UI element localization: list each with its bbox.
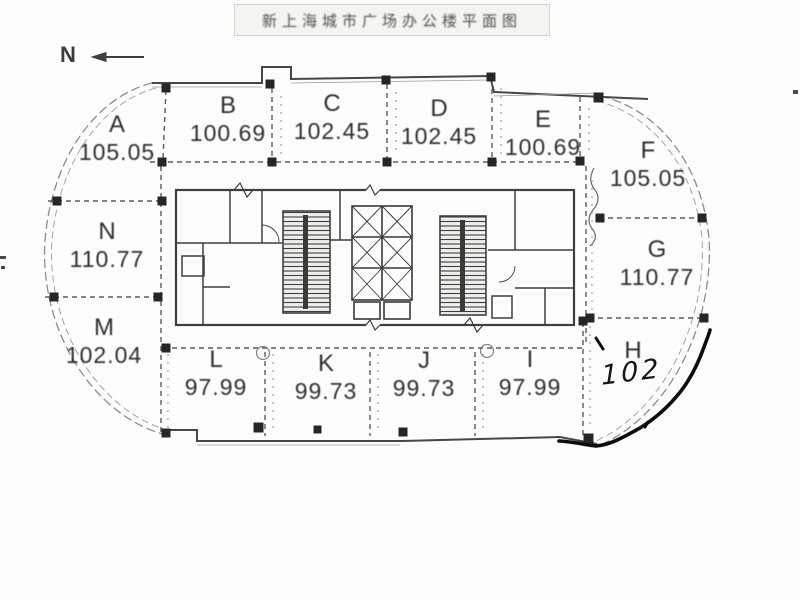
unit-area: 99.73 xyxy=(295,380,358,403)
unit-letter: E xyxy=(535,108,551,132)
unit-label-L: L 97.99 xyxy=(161,348,271,399)
unit-label-C: C 102.45 xyxy=(277,92,387,143)
unit-area: 97.99 xyxy=(499,376,562,399)
floor-plan-page: 新上海城市广场办公楼平面图 N A 105.05 B 100.69 C 102.… xyxy=(0,0,800,600)
unit-label-A: A 105.05 xyxy=(62,113,172,164)
unit-letter: J xyxy=(418,349,430,373)
unit-letter: B xyxy=(220,94,236,118)
unit-area: 102.04 xyxy=(66,344,142,367)
compass-arrow-icon xyxy=(92,53,144,62)
unit-letter: N xyxy=(98,220,115,244)
unit-label-I: I 97.99 xyxy=(475,348,585,399)
unit-area: 105.05 xyxy=(79,141,155,164)
compass-north-label: N xyxy=(60,42,76,68)
unit-label-M: M 102.04 xyxy=(49,316,159,367)
unit-area: 97.99 xyxy=(185,376,248,399)
unit-area: 110.77 xyxy=(620,266,695,289)
unit-area: 99.73 xyxy=(393,377,456,400)
floor-plan-drawing xyxy=(0,0,800,600)
elevator-bank xyxy=(352,206,412,319)
unit-label-D: D 102.45 xyxy=(384,97,494,148)
unit-letter: K xyxy=(318,352,334,376)
unit-letter: A xyxy=(109,113,125,137)
unit-label-G: G 110.77 xyxy=(602,238,712,289)
unit-label-E: E 100.69 xyxy=(488,108,598,159)
unit-letter: I xyxy=(527,348,534,372)
unit-area: 102.45 xyxy=(294,120,370,143)
unit-area: 102.45 xyxy=(401,125,477,148)
unit-letter: C xyxy=(323,92,340,116)
unit-letter: L xyxy=(209,348,222,372)
stair-west xyxy=(283,211,330,313)
unit-label-F: F 105.05 xyxy=(593,139,703,190)
unit-letter: F xyxy=(641,139,656,163)
unit-letter: G xyxy=(648,238,667,262)
core-walls xyxy=(176,190,574,325)
drawing-title-box: 新上海城市广场办公楼平面图 xyxy=(234,4,550,36)
drawing-title: 新上海城市广场办公楼平面图 xyxy=(262,10,522,31)
unit-label-B: B 100.69 xyxy=(173,94,283,145)
stair-east xyxy=(440,216,486,315)
unit-letter: M xyxy=(94,316,114,340)
unit-label-J: J 99.73 xyxy=(369,349,479,400)
unit-letter: D xyxy=(430,97,447,121)
unit-area: 110.77 xyxy=(70,248,145,271)
unit-label-K: K 99.73 xyxy=(271,352,381,403)
unit-label-N: N 110.77 xyxy=(52,220,162,271)
unit-area: 100.69 xyxy=(190,122,266,145)
unit-area: 105.05 xyxy=(610,167,686,190)
unit-area: 100.69 xyxy=(505,136,581,159)
